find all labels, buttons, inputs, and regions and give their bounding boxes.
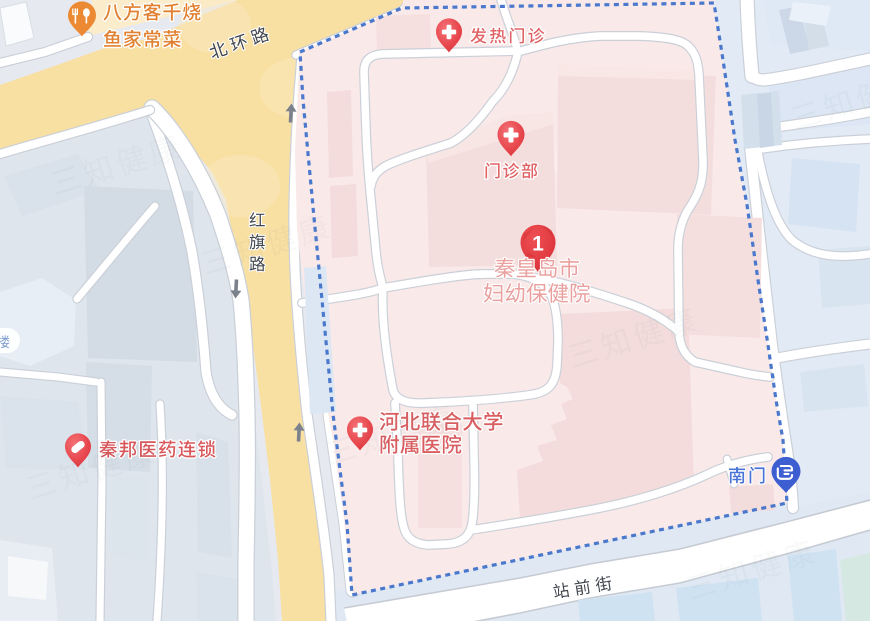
svg-text:1: 1 [532, 233, 544, 256]
